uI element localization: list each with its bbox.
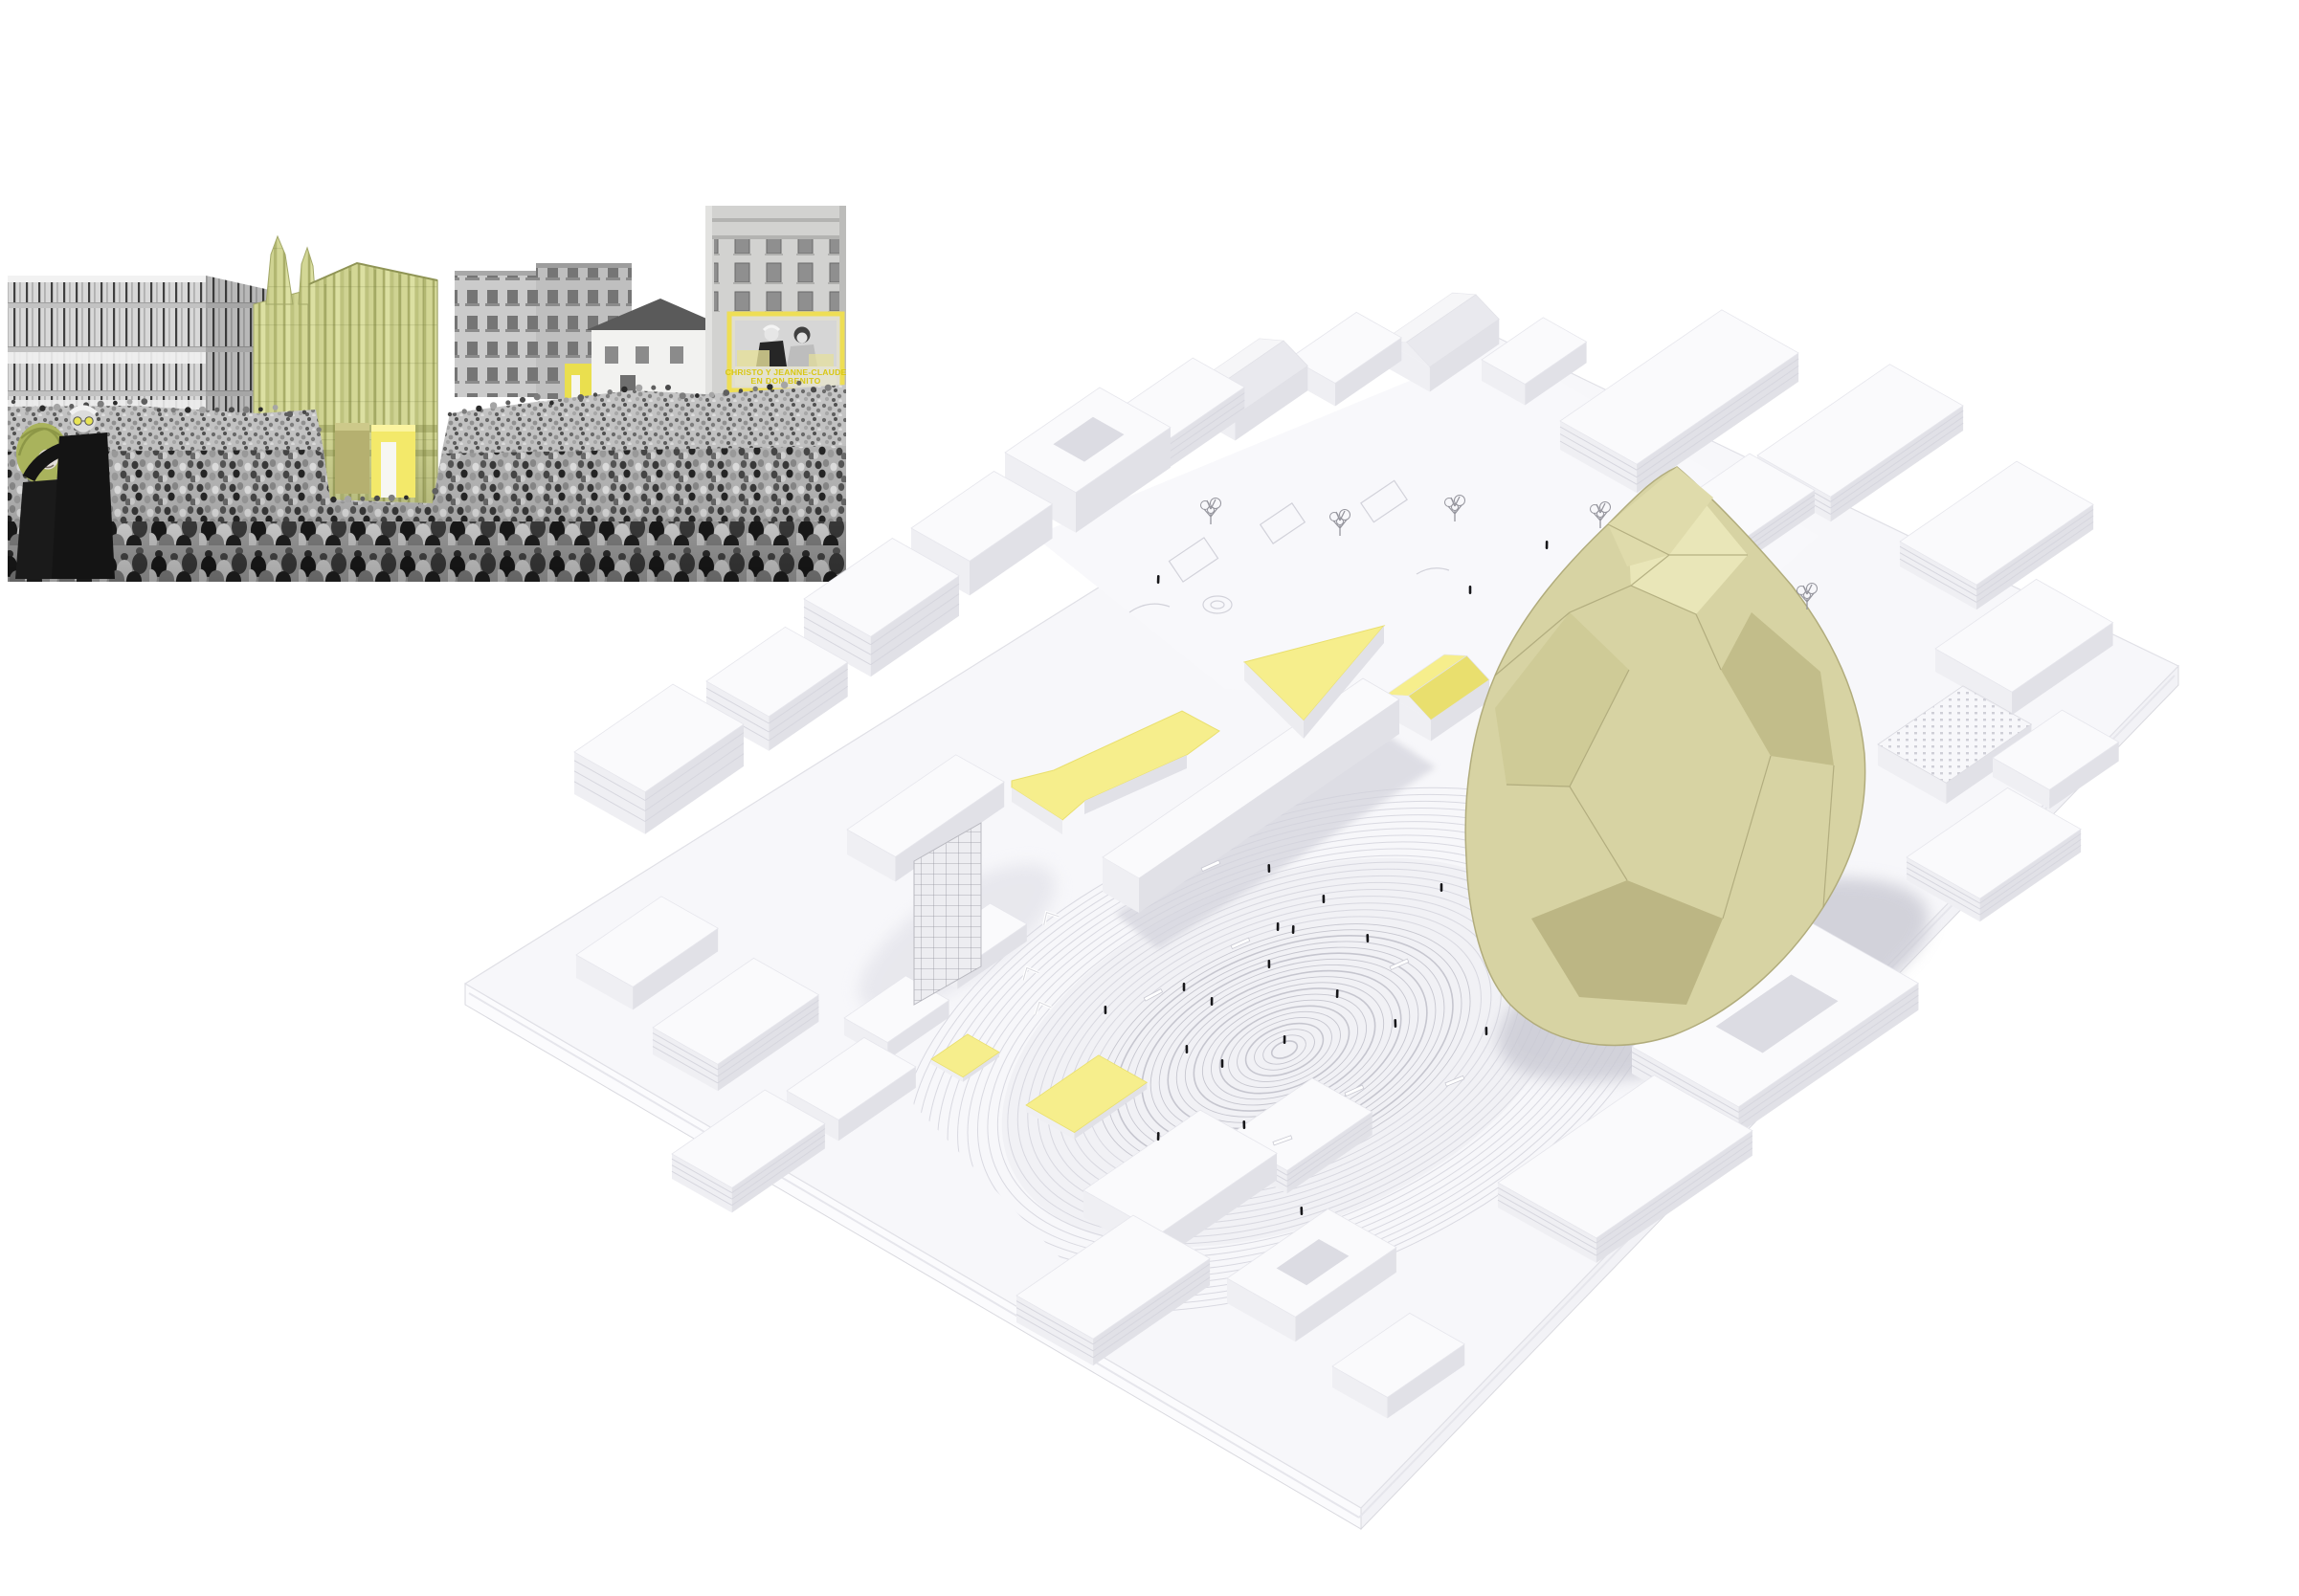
scale-figure xyxy=(1221,1059,1224,1068)
olive-kiosk xyxy=(335,423,369,494)
scale-figure xyxy=(1292,925,1295,934)
scale-figure xyxy=(1394,1019,1396,1028)
scale-figure xyxy=(1485,1027,1488,1035)
scale-figure xyxy=(1105,1006,1107,1014)
scale-figure xyxy=(1157,1132,1160,1141)
scale-figure xyxy=(1268,960,1271,968)
wrapped-spire xyxy=(266,236,293,304)
scale-figure xyxy=(1267,864,1270,873)
scale-figure xyxy=(1186,1045,1189,1053)
scale-figure xyxy=(1323,895,1326,903)
scale-figure xyxy=(1242,1120,1245,1129)
scale-figure xyxy=(1183,983,1186,991)
scale-figure xyxy=(1300,1207,1303,1215)
scale-figure xyxy=(1336,989,1339,998)
kiosks xyxy=(335,423,415,498)
scale-figure xyxy=(1283,1035,1286,1044)
scale-figure xyxy=(1157,575,1160,584)
billboard: CHRISTO Y JEANNE-CLAUDE EN DON BENITO xyxy=(725,314,847,390)
page: CHRISTO Y JEANNE-CLAUDE EN DON BENITO xyxy=(0,0,2299,1596)
scale-figure xyxy=(1277,922,1280,931)
scale-figure xyxy=(1469,586,1472,594)
photomontage-collage: CHRISTO Y JEANNE-CLAUDE EN DON BENITO xyxy=(8,206,846,582)
scale-figure xyxy=(1366,934,1369,942)
scale-figure xyxy=(1211,997,1214,1006)
scale-figure xyxy=(1440,883,1443,892)
architecture-presentation-image: CHRISTO Y JEANNE-CLAUDE EN DON BENITO xyxy=(0,0,2299,1596)
scale-figure xyxy=(1546,541,1549,549)
